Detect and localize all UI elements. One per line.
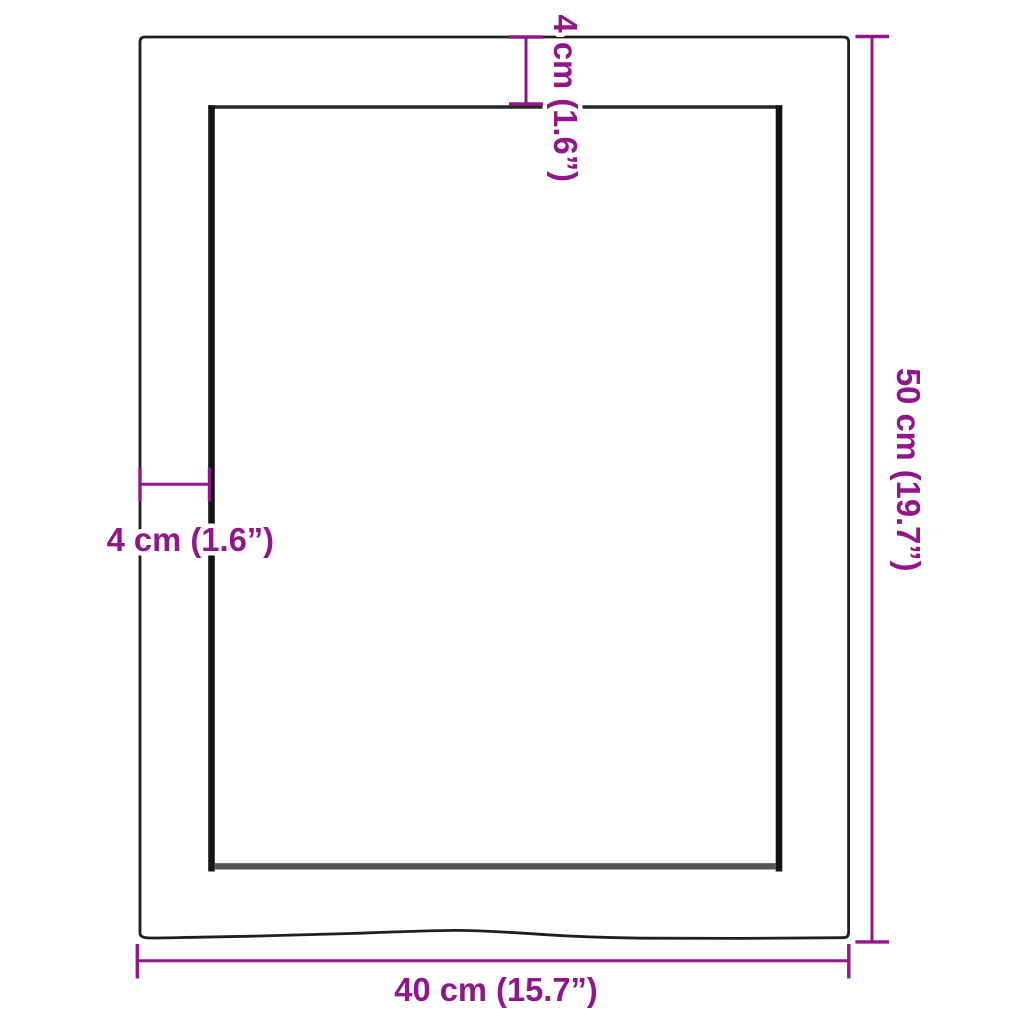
svg-text:50 cm (19.7”): 50 cm (19.7”) [890,368,927,572]
svg-text:4 cm (1.6”): 4 cm (1.6”) [547,15,584,183]
svg-text:4 cm (1.6”): 4 cm (1.6”) [107,521,275,558]
svg-text:40 cm (15.7”): 40 cm (15.7”) [394,971,598,1008]
